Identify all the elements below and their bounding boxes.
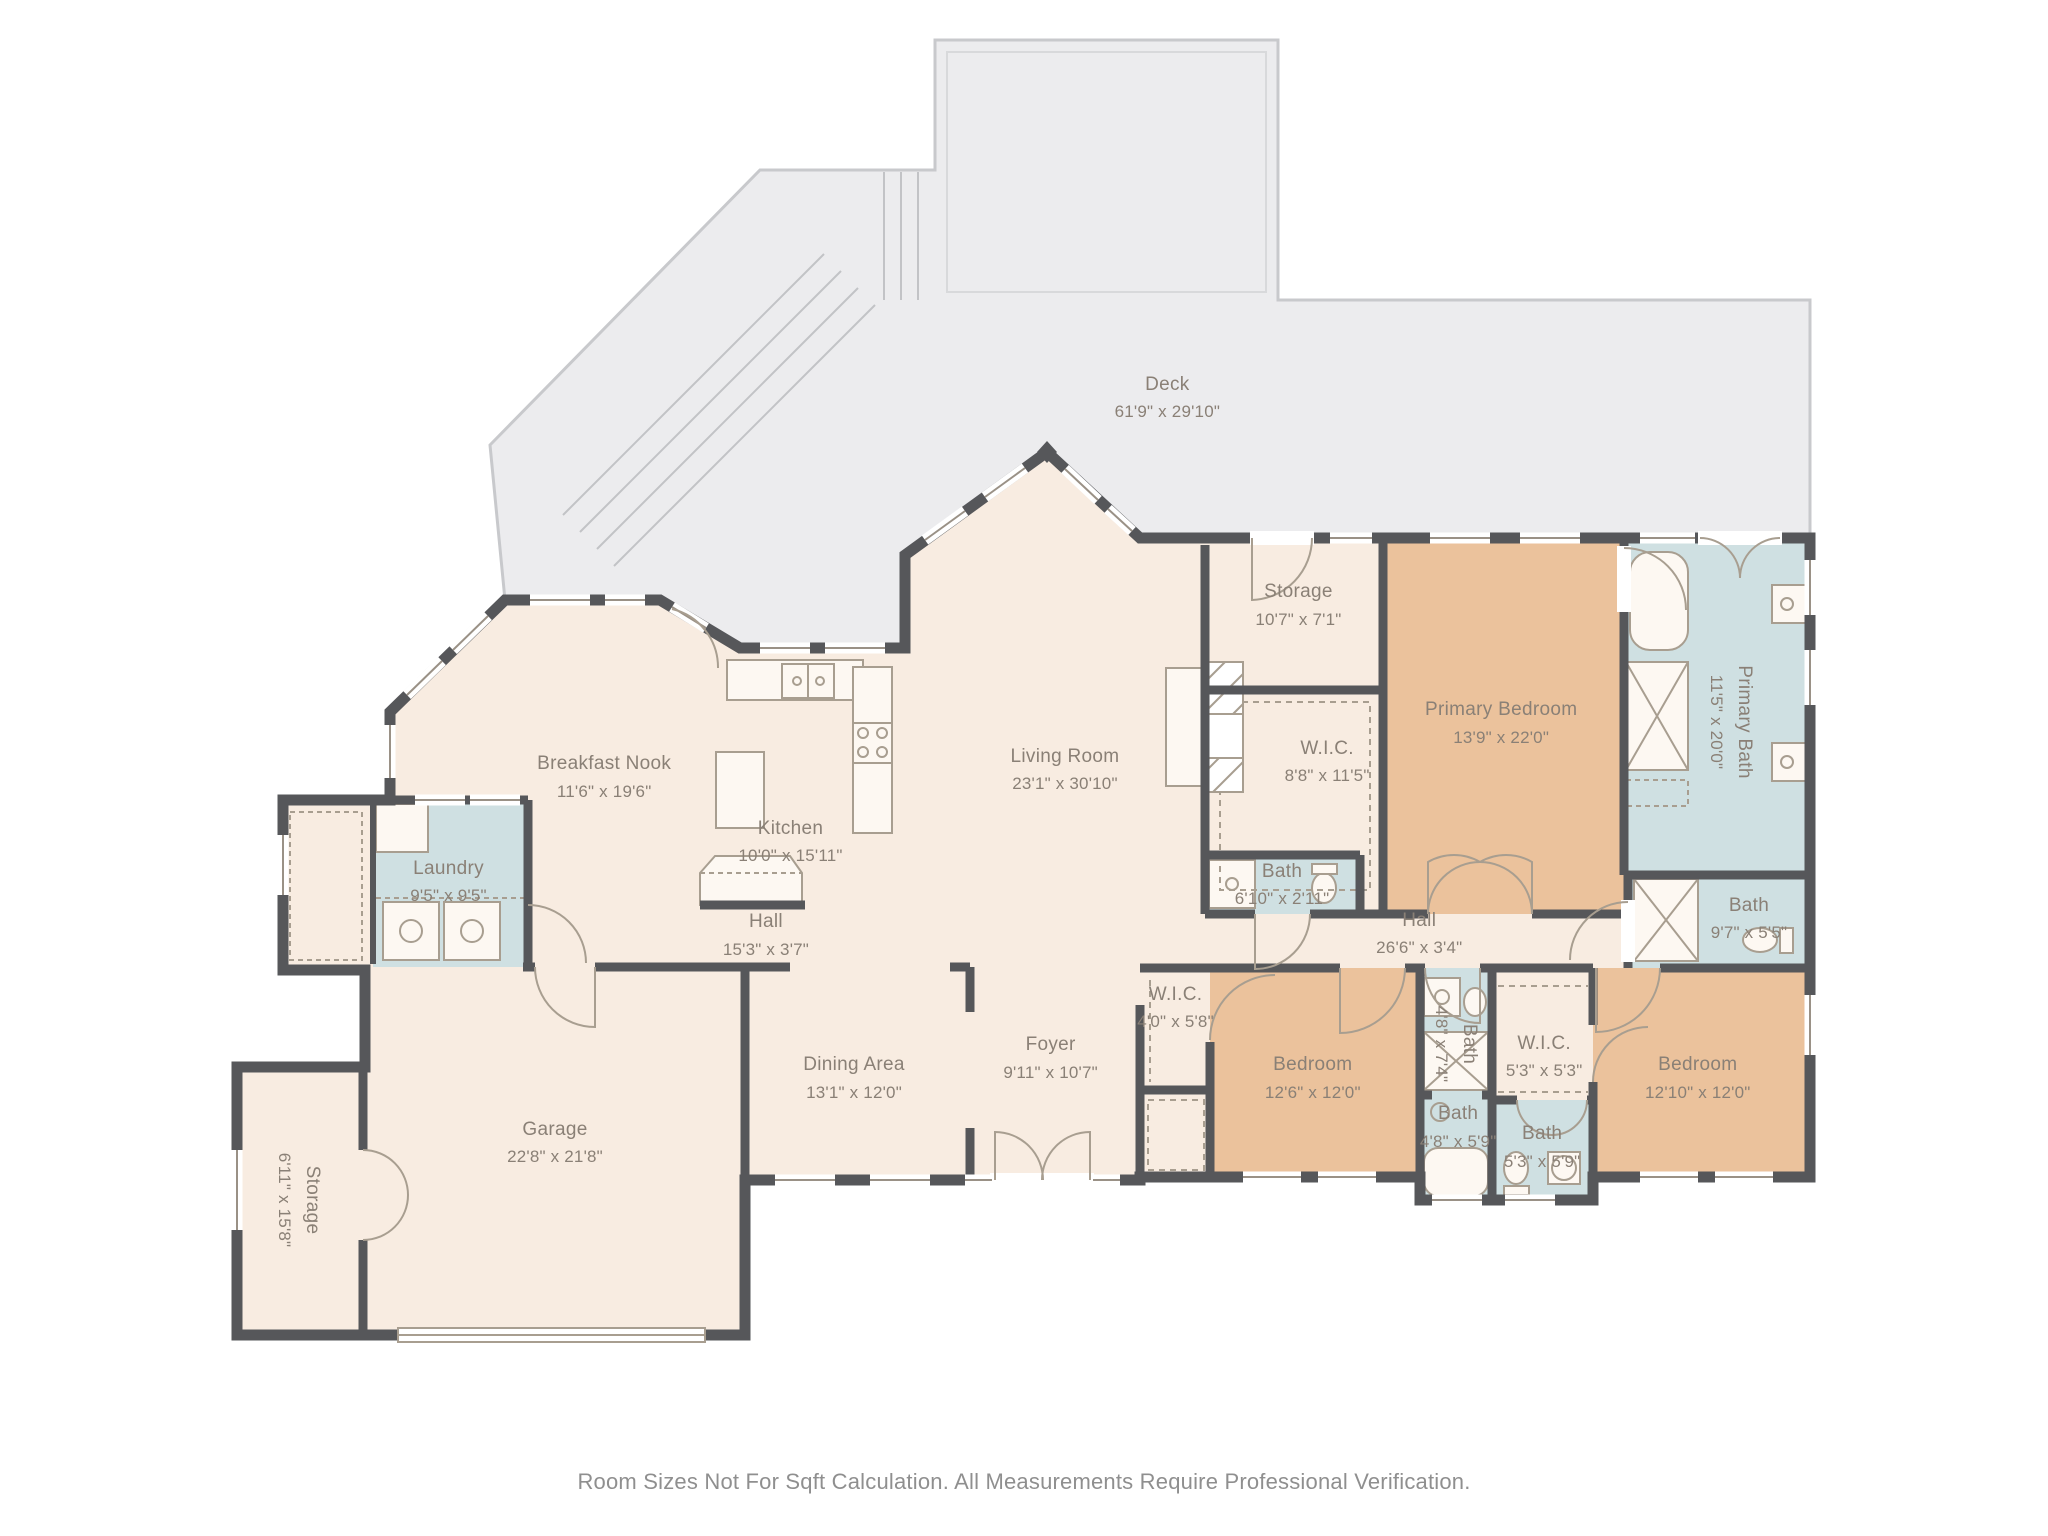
primary-bedroom-area (1383, 538, 1624, 914)
floorplan-svg (0, 0, 2048, 1536)
disclaimer-text: Room Sizes Not For Sqft Calculation. All… (577, 1469, 1470, 1495)
floorplan: Deck61'9" x 29'10"Storage10'7" x 7'1"Pri… (0, 0, 2048, 1536)
bedroom-1-area (1210, 968, 1420, 1177)
bedroom-2-area (1593, 968, 1810, 1177)
